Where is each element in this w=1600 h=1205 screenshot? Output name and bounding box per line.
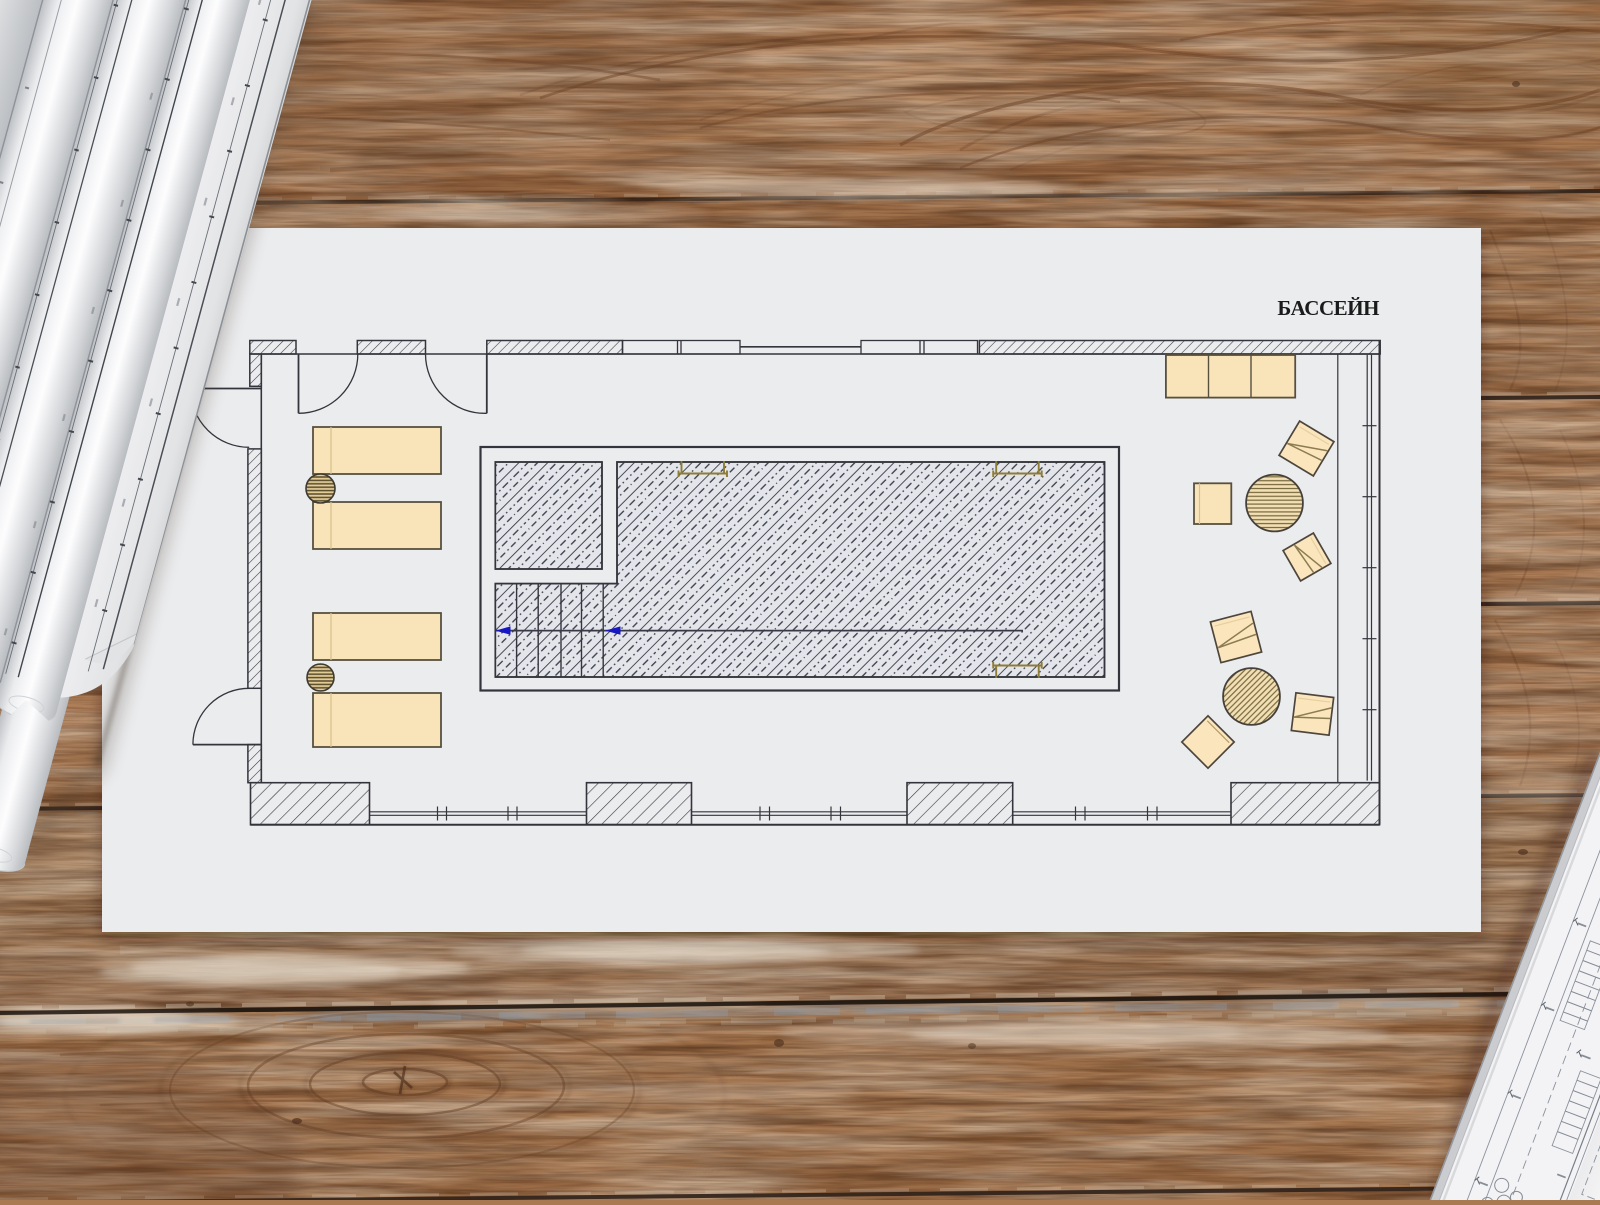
svg-text:БАССЕЙН: БАССЕЙН (1277, 296, 1379, 320)
